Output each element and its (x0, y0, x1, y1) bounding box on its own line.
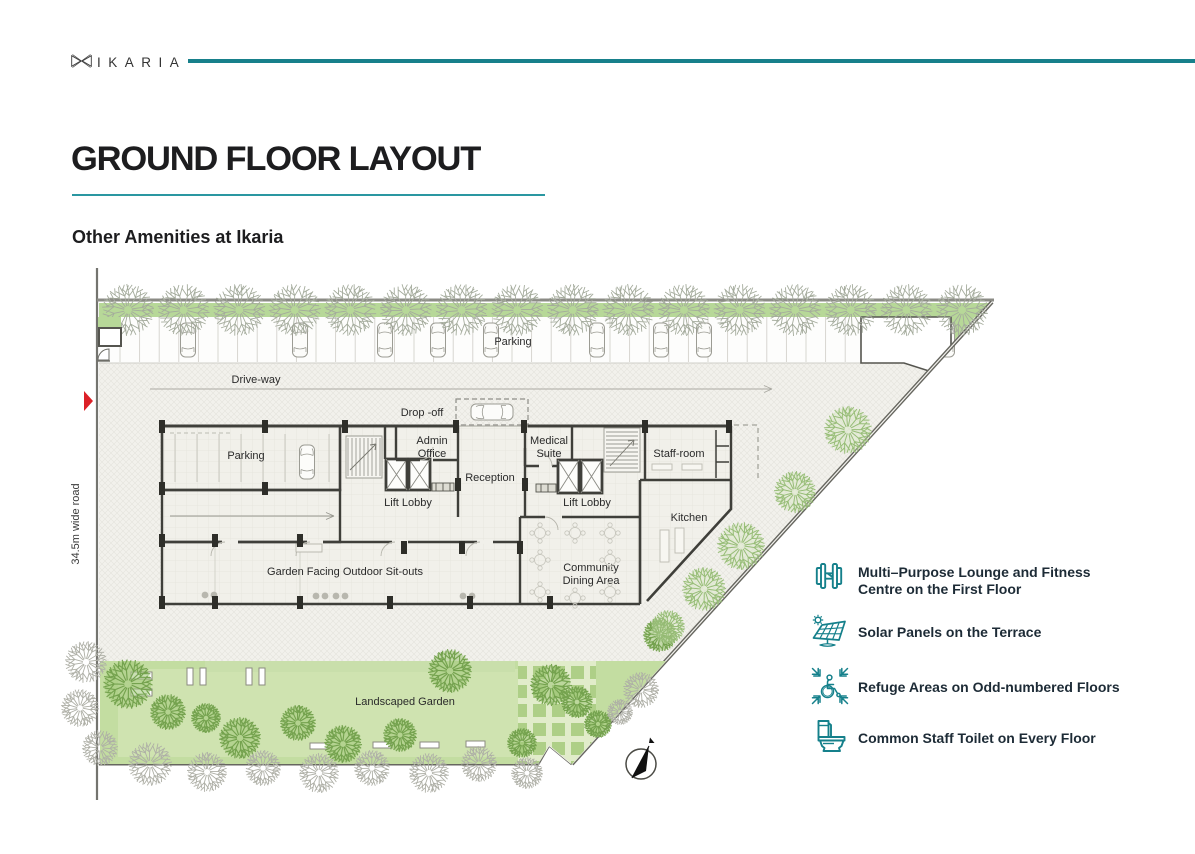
svg-text:Office: Office (418, 448, 447, 460)
svg-text:Lift Lobby: Lift Lobby (563, 497, 611, 509)
svg-text:Landscaped Garden: Landscaped Garden (355, 696, 455, 708)
svg-text:Lift Lobby: Lift Lobby (384, 497, 432, 509)
svg-text:Garden Facing Outdoor Sit-outs: Garden Facing Outdoor Sit-outs (267, 566, 423, 578)
svg-text:Reception: Reception (465, 472, 515, 484)
svg-text:Parking: Parking (494, 336, 531, 348)
svg-text:Drive-way: Drive-way (232, 374, 281, 386)
svg-text:Parking: Parking (227, 450, 264, 462)
svg-text:Medical: Medical (530, 435, 568, 447)
svg-text:Drop -off: Drop -off (401, 407, 445, 419)
svg-text:Admin: Admin (416, 435, 447, 447)
svg-text:Suite: Suite (536, 448, 561, 460)
svg-text:Community: Community (563, 562, 619, 574)
svg-text:Kitchen: Kitchen (671, 512, 708, 524)
svg-text:Staff-room: Staff-room (653, 448, 704, 460)
svg-text:34.5m wide road: 34.5m wide road (70, 483, 82, 564)
